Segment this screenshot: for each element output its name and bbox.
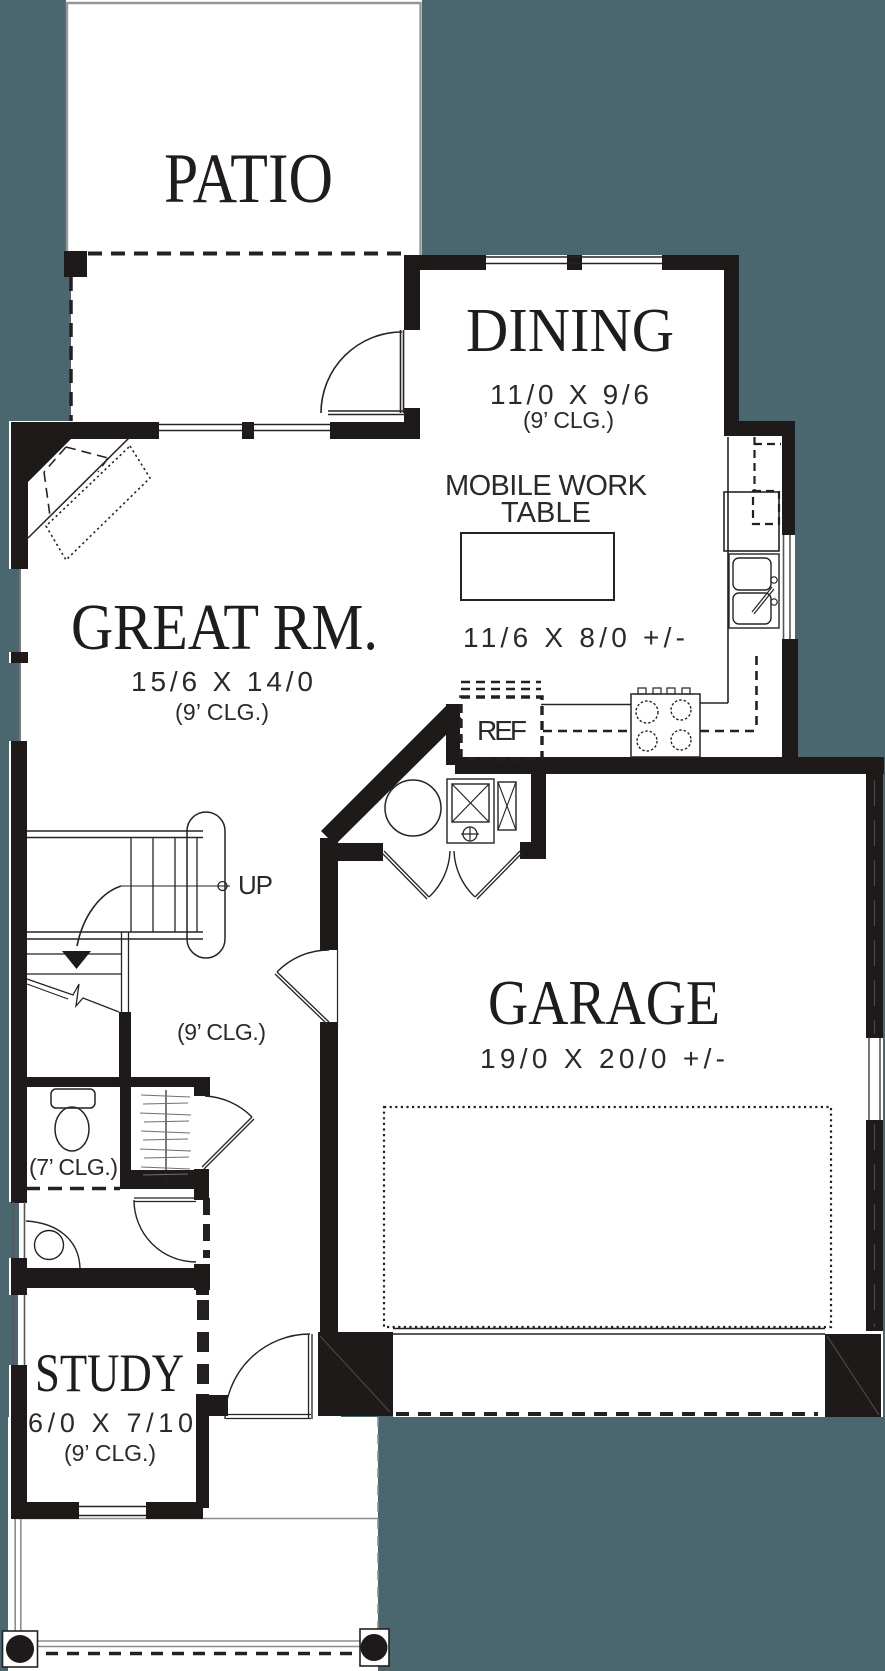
svg-text:15/6 X 14/0: 15/6 X 14/0 [131,666,313,697]
svg-text:REF: REF [477,715,527,746]
svg-text:(9’ CLG.): (9’ CLG.) [175,699,269,725]
svg-text:GARAGE: GARAGE [488,968,720,1038]
svg-text:PATIO: PATIO [164,140,333,218]
svg-text:11/0 X 9/6: 11/0 X 9/6 [490,379,649,410]
svg-text:TABLE: TABLE [501,497,591,529]
svg-text:(9’ CLG.): (9’ CLG.) [177,1019,266,1045]
svg-text:(9’ CLG.): (9’ CLG.) [523,407,614,433]
svg-text:DINING: DINING [466,297,674,365]
svg-text:11/6 X 8/0 +/-: 11/6 X 8/0 +/- [463,622,685,653]
svg-text:STUDY: STUDY [35,1343,184,1403]
svg-text:(9’ CLG.): (9’ CLG.) [64,1440,156,1466]
svg-text:GREAT RM.: GREAT RM. [71,591,378,664]
svg-text:UP: UP [238,870,273,900]
svg-text:(7’ CLG.): (7’ CLG.) [29,1154,118,1180]
